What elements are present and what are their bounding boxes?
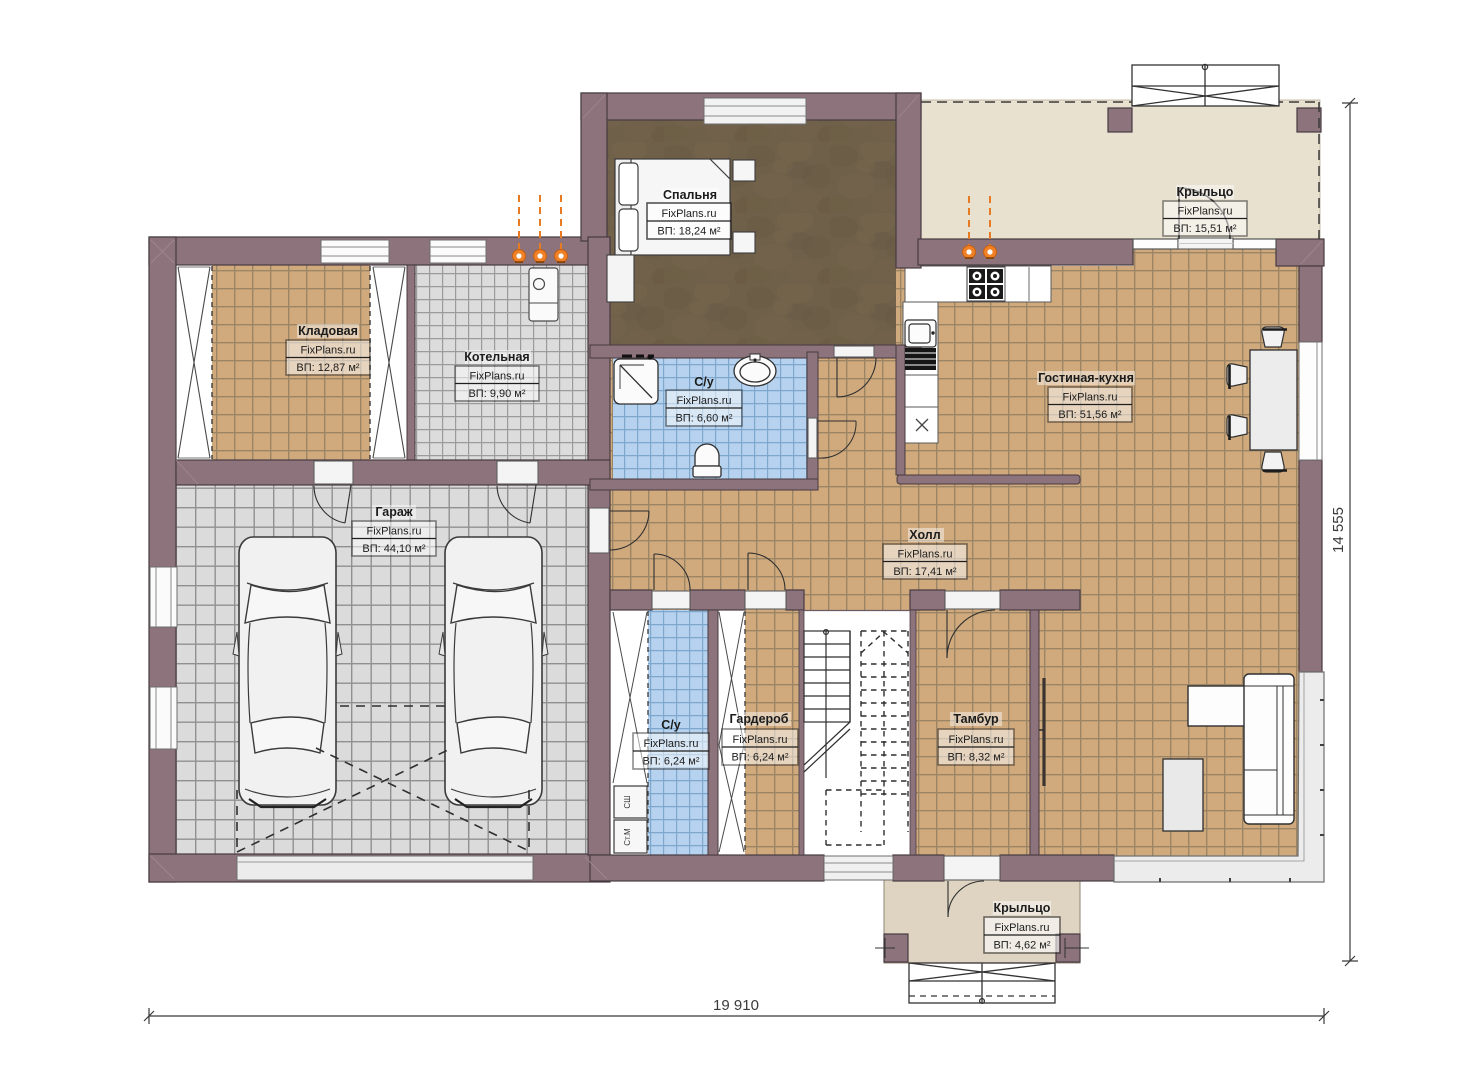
svg-text:FixPlans.ru: FixPlans.ru [1062,392,1117,404]
svg-text:Гардероб: Гардероб [729,712,788,726]
svg-text:Спальня: Спальня [663,188,717,202]
svg-text:ВП: 17,41 м²: ВП: 17,41 м² [893,566,957,578]
svg-text:Тамбур: Тамбур [953,712,999,726]
svg-text:FixPlans.ru: FixPlans.ru [948,734,1003,746]
svg-text:ВП: 51,56 м²: ВП: 51,56 м² [1058,409,1122,421]
svg-text:ВП: 18,24 м²: ВП: 18,24 м² [657,226,721,238]
svg-text:Крыльцо: Крыльцо [994,901,1051,915]
svg-text:ВП: 6,24 м²: ВП: 6,24 м² [731,752,788,764]
svg-text:ВП: 6,24 м²: ВП: 6,24 м² [642,756,699,768]
svg-text:FixPlans.ru: FixPlans.ru [643,738,698,750]
svg-text:СШ: СШ [623,795,632,808]
svg-text:ВП: 6,60 м²: ВП: 6,60 м² [675,413,732,425]
svg-text:С/у: С/у [694,375,714,389]
svg-text:FixPlans.ru: FixPlans.ru [732,734,787,746]
svg-text:ВП: 4,62 м²: ВП: 4,62 м² [993,940,1050,952]
svg-text:ВП: 15,51 м²: ВП: 15,51 м² [1173,223,1237,235]
svg-text:Котельная: Котельная [464,350,529,364]
svg-text:Кладовая: Кладовая [298,324,358,338]
svg-text:19 910: 19 910 [713,997,759,1014]
svg-text:FixPlans.ru: FixPlans.ru [469,371,524,383]
svg-text:С/у: С/у [661,718,681,732]
svg-text:Ст.М: Ст.М [623,828,632,846]
svg-text:Холл: Холл [909,528,940,542]
svg-text:FixPlans.ru: FixPlans.ru [366,526,421,538]
svg-text:FixPlans.ru: FixPlans.ru [661,208,716,220]
svg-text:FixPlans.ru: FixPlans.ru [1177,206,1232,218]
svg-text:14 555: 14 555 [1330,507,1347,553]
svg-text:ВП: 12,87 м²: ВП: 12,87 м² [296,362,360,374]
svg-text:Гостиная-кухня: Гостиная-кухня [1038,371,1134,385]
svg-text:FixPlans.ru: FixPlans.ru [897,549,952,561]
svg-text:FixPlans.ru: FixPlans.ru [994,922,1049,934]
svg-text:FixPlans.ru: FixPlans.ru [676,395,731,407]
svg-text:ВП: 8,32 м²: ВП: 8,32 м² [947,752,1004,764]
svg-text:ВП: 9,90 м²: ВП: 9,90 м² [468,388,525,400]
svg-text:Крыльцо: Крыльцо [1177,185,1234,199]
svg-text:ВП: 44,10 м²: ВП: 44,10 м² [362,543,426,555]
svg-text:Гараж: Гараж [375,505,412,519]
svg-text:FixPlans.ru: FixPlans.ru [300,345,355,357]
